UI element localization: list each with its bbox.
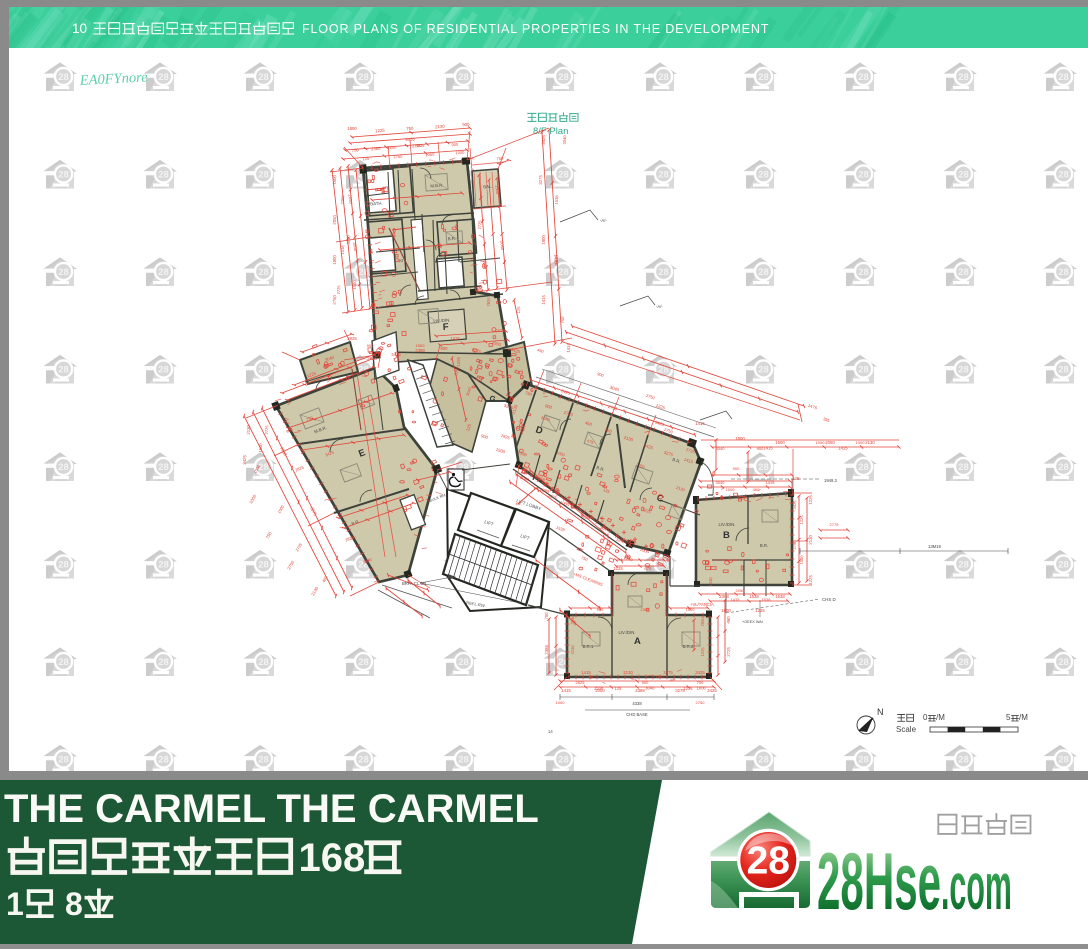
svg-text:750: 750 <box>697 680 704 685</box>
svg-text:2130: 2130 <box>808 534 814 544</box>
svg-text:900: 900 <box>367 343 374 348</box>
svg-text:3425: 3425 <box>415 143 425 149</box>
svg-text:B.R.: B.R. <box>760 543 768 548</box>
svg-text:125: 125 <box>615 686 622 691</box>
svg-text:2725: 2725 <box>477 220 482 230</box>
svg-text:1415: 1415 <box>541 294 547 304</box>
svg-text:1500: 1500 <box>352 280 357 290</box>
svg-text:1415: 1415 <box>581 670 591 675</box>
svg-text:125: 125 <box>516 306 521 314</box>
svg-text:28: 28 <box>747 840 790 883</box>
svg-text:BATH: BATH <box>370 201 381 207</box>
svg-text:2050: 2050 <box>595 688 605 693</box>
svg-text:2388: 2388 <box>371 146 381 152</box>
svg-text:2725: 2725 <box>336 285 341 295</box>
svg-text:1800: 1800 <box>735 436 745 441</box>
svg-text:1000: 1000 <box>556 700 566 705</box>
svg-text:1800: 1800 <box>352 242 358 252</box>
svg-text:2750: 2750 <box>393 154 403 160</box>
svg-text:2050: 2050 <box>332 214 338 224</box>
svg-text:750: 750 <box>544 612 549 620</box>
svg-text:2388: 2388 <box>415 348 425 353</box>
svg-text:900: 900 <box>451 142 459 148</box>
svg-text:2050: 2050 <box>700 617 705 627</box>
svg-text:2825: 2825 <box>347 336 357 341</box>
svg-text:CHD BASE: CHD BASE <box>626 712 648 717</box>
svg-text:1415: 1415 <box>838 446 848 451</box>
svg-text:1225: 1225 <box>755 608 765 613</box>
svg-text:3040: 3040 <box>645 686 655 691</box>
svg-text:1225: 1225 <box>684 686 694 691</box>
svg-text:3275: 3275 <box>663 670 673 675</box>
svg-text:3425: 3425 <box>391 352 401 357</box>
svg-text:1538: 1538 <box>340 245 345 255</box>
svg-text:3425: 3425 <box>242 454 248 464</box>
svg-text:1500: 1500 <box>775 440 785 445</box>
svg-text:2388: 2388 <box>635 688 645 693</box>
svg-text:FLOOR PLANS OF RESIDENTIAL PRO: FLOOR PLANS OF RESIDENTIAL PROPERTIES IN… <box>302 22 769 36</box>
svg-text:2050: 2050 <box>825 440 835 445</box>
svg-text:LIV./DIN.: LIV./DIN. <box>618 630 635 635</box>
svg-text:1000: 1000 <box>697 686 707 691</box>
svg-text:900: 900 <box>733 466 740 471</box>
svg-text:2825: 2825 <box>495 328 505 334</box>
svg-text:675: 675 <box>644 566 652 571</box>
svg-text:2825: 2825 <box>486 297 491 307</box>
svg-text:1500: 1500 <box>799 555 804 565</box>
svg-text:1500: 1500 <box>258 443 263 453</box>
svg-text:1415: 1415 <box>561 688 571 693</box>
svg-text:1500: 1500 <box>686 607 696 612</box>
svg-text:3425: 3425 <box>695 670 705 675</box>
svg-text:1415: 1415 <box>566 342 572 352</box>
svg-text:2725: 2725 <box>264 425 269 435</box>
svg-text:1800: 1800 <box>721 608 731 613</box>
svg-text:3425: 3425 <box>792 500 797 510</box>
svg-text:1500: 1500 <box>494 185 500 195</box>
svg-text:2130: 2130 <box>623 670 633 675</box>
svg-text:3040: 3040 <box>716 446 726 451</box>
svg-text:2725: 2725 <box>367 356 377 361</box>
svg-text:/M: /M <box>936 713 945 722</box>
svg-text:2050: 2050 <box>499 241 505 251</box>
svg-text:460: 460 <box>726 616 731 624</box>
svg-text:0: 0 <box>923 713 928 722</box>
svg-text:B.R.: B.R. <box>448 236 457 242</box>
svg-text:1538: 1538 <box>554 255 559 265</box>
svg-text:1225: 1225 <box>456 356 462 366</box>
svg-text:F: F <box>442 322 449 333</box>
svg-text:900: 900 <box>757 446 764 451</box>
svg-text:4338: 4338 <box>632 701 642 706</box>
svg-text:N: N <box>877 707 884 717</box>
svg-text:/M: /M <box>1019 713 1028 722</box>
svg-text:3275: 3275 <box>538 174 544 184</box>
svg-text:1800: 1800 <box>332 254 338 264</box>
svg-text:3425: 3425 <box>541 134 547 144</box>
svg-text:1000: 1000 <box>856 440 866 445</box>
svg-text:BAL.: BAL. <box>483 184 493 190</box>
svg-text:-A/-: -A/- <box>656 304 663 309</box>
svg-text:3040: 3040 <box>716 480 726 485</box>
svg-text:2130: 2130 <box>246 424 252 434</box>
svg-text:2750: 2750 <box>332 294 338 304</box>
svg-text:1538: 1538 <box>762 597 772 602</box>
svg-text:2775: 2775 <box>830 522 840 527</box>
svg-text:3040: 3040 <box>562 135 567 145</box>
svg-text:10: 10 <box>72 21 87 36</box>
svg-text:A: A <box>634 636 641 647</box>
svg-text:1415: 1415 <box>450 336 460 341</box>
svg-text:.com: .com <box>941 850 1012 923</box>
svg-text:2050: 2050 <box>425 152 435 158</box>
svg-text:2388: 2388 <box>719 594 729 599</box>
svg-text:2050: 2050 <box>348 194 354 204</box>
svg-text:Scale: Scale <box>896 725 917 734</box>
svg-text:1800: 1800 <box>347 126 357 131</box>
svg-text:1800: 1800 <box>541 234 547 244</box>
svg-text:1415: 1415 <box>766 480 776 485</box>
svg-text:CHS D: CHS D <box>822 597 836 602</box>
svg-text:1538: 1538 <box>775 594 785 599</box>
svg-text:14: 14 <box>548 729 553 734</box>
svg-text:13M19: 13M19 <box>928 544 941 549</box>
svg-text:1000: 1000 <box>455 150 465 156</box>
svg-text:B.R.1: B.R.1 <box>583 644 594 649</box>
svg-text:B.R.2: B.R.2 <box>683 644 694 649</box>
svg-text:1225: 1225 <box>375 128 385 134</box>
svg-text:1225: 1225 <box>613 566 623 571</box>
svg-text:3275: 3275 <box>675 688 685 693</box>
svg-text:900: 900 <box>642 680 649 685</box>
svg-text:1225: 1225 <box>808 574 814 584</box>
svg-text:+OEEX WAI: +OEEX WAI <box>742 620 763 624</box>
svg-text:1225: 1225 <box>808 494 814 504</box>
svg-text:2130: 2130 <box>435 124 445 130</box>
svg-text:2750: 2750 <box>792 540 797 550</box>
svg-text:THE CARMEL THE CARMEL: THE CARMEL THE CARMEL <box>4 787 539 831</box>
svg-text:2750: 2750 <box>696 700 706 705</box>
svg-text:750: 750 <box>560 316 565 324</box>
svg-text:1538: 1538 <box>708 577 713 587</box>
svg-text:1500: 1500 <box>387 145 397 151</box>
svg-text:750: 750 <box>352 147 360 153</box>
svg-text:2130: 2130 <box>865 440 875 445</box>
svg-text:1225: 1225 <box>700 647 705 657</box>
svg-text:28Hse: 28Hse <box>817 836 941 926</box>
svg-text:1415: 1415 <box>695 421 705 426</box>
svg-text:1225: 1225 <box>799 515 804 525</box>
svg-text:750: 750 <box>406 126 414 132</box>
svg-text:1500: 1500 <box>332 174 338 184</box>
svg-text:1: 1 <box>6 886 24 922</box>
svg-text:2725: 2725 <box>726 646 732 656</box>
svg-text:B: B <box>723 530 730 541</box>
svg-text:1000: 1000 <box>816 440 826 445</box>
svg-text:750: 750 <box>496 156 504 162</box>
svg-text:1949.3: 1949.3 <box>824 478 837 483</box>
svg-text:5: 5 <box>1006 713 1011 722</box>
svg-text:1538: 1538 <box>749 594 759 599</box>
svg-text:125: 125 <box>792 476 800 481</box>
svg-text:1415: 1415 <box>763 446 773 451</box>
svg-text:2388: 2388 <box>641 607 651 612</box>
svg-text:2388: 2388 <box>544 644 550 654</box>
svg-text:-A/-: -A/- <box>600 218 607 223</box>
svg-text:1000: 1000 <box>726 487 736 492</box>
svg-text:2050: 2050 <box>736 588 746 593</box>
svg-text:2388: 2388 <box>340 195 345 205</box>
svg-text:168: 168 <box>299 836 366 880</box>
svg-text:900: 900 <box>440 346 448 351</box>
svg-text:900: 900 <box>462 122 470 128</box>
svg-text:1415: 1415 <box>731 597 741 602</box>
svg-text:3425: 3425 <box>707 688 717 693</box>
svg-text:460: 460 <box>753 487 760 492</box>
svg-text:LIV./DIN.: LIV./DIN. <box>718 522 735 527</box>
svg-text:125: 125 <box>362 156 370 162</box>
svg-text:1538: 1538 <box>554 195 559 205</box>
svg-text:8: 8 <box>65 886 83 922</box>
svg-text:8/F Plan: 8/F Plan <box>533 126 568 137</box>
svg-text:3040: 3040 <box>346 235 351 245</box>
svg-text:2825: 2825 <box>576 680 586 685</box>
svg-text:2130: 2130 <box>570 645 575 655</box>
